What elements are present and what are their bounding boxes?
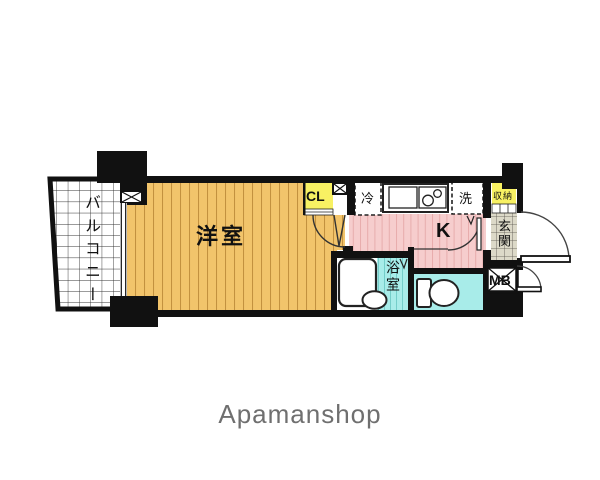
western-room-label: 洋室 [196,226,246,248]
floorplan-image: バルコニー 洋室 CL 冷 洗 収納 K 浴室 玄関 MB Apamanshop [0,0,600,480]
meter-box-label: MB [489,273,511,287]
sink [389,187,417,208]
storage-label: 収納 [493,192,513,201]
refrigerator-label: 冷 [361,192,374,205]
balcony-label: バルコニー [82,194,98,309]
bathroom-label: 浴室 [386,260,400,294]
small-window-icon [333,183,347,194]
pillar-top-right [502,163,523,189]
balcony-window-icon [121,191,142,203]
kitchen-label: K [436,221,450,241]
kitchen-counter [383,184,448,212]
door-arc-main-entrance [521,212,570,262]
pillar-bottom-left [110,296,158,327]
brand-footer: Apamanshop [0,399,600,430]
entrance-label: 玄関 [497,219,510,249]
balcony-sash-window [120,203,127,296]
toilet [417,279,459,307]
washbasin-oval [363,291,387,308]
closet-label: CL [306,189,325,203]
washer-label: 洗 [459,192,472,205]
